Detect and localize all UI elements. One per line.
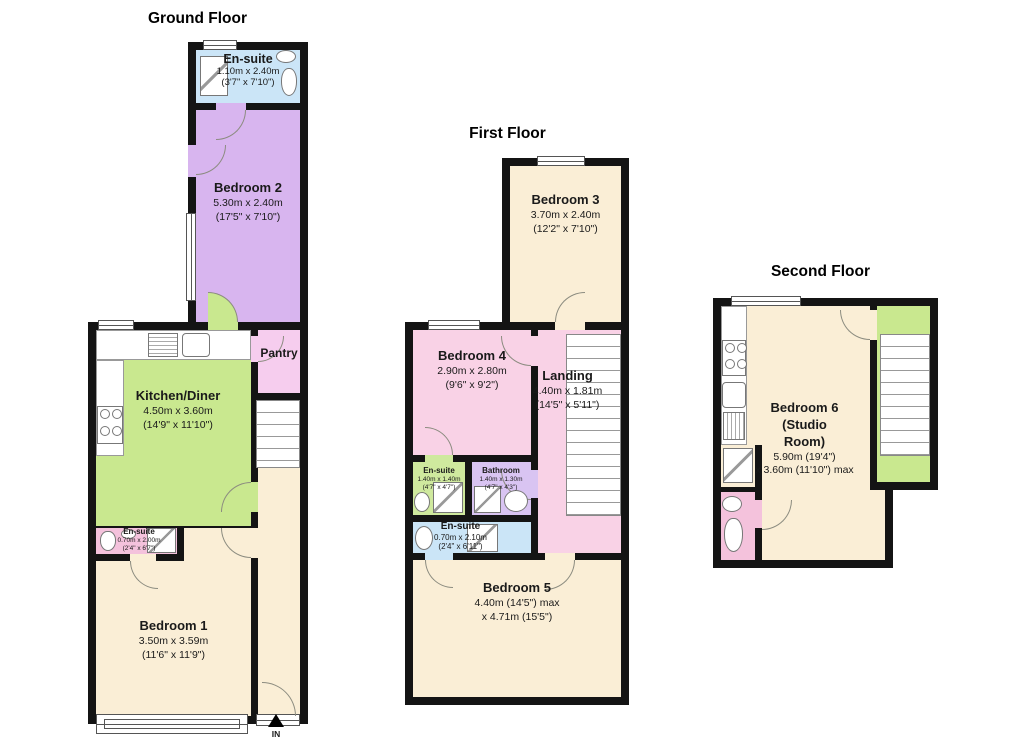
label-bedroom6: Bedroom 6 (Studio Room) 5.90m (19'4") x … bbox=[742, 400, 867, 478]
door-gap-bathroom bbox=[531, 470, 538, 498]
door-gap-ensuite-top bbox=[216, 103, 246, 110]
door-gap-bedroom5 bbox=[545, 553, 575, 560]
room-dim: 0.70m x 2.10m bbox=[413, 533, 508, 542]
room-name: Bedroom 1 bbox=[96, 618, 251, 635]
bay-window-inner bbox=[104, 719, 240, 729]
label-pantry: Pantry bbox=[256, 346, 302, 362]
label-landing: Landing 4.40m x 1.81m (14'5" x 5'11") bbox=[510, 368, 625, 412]
floorplan-canvas: Ground Floor En-suite 1.10 bbox=[0, 0, 1020, 742]
window-bedroom6 bbox=[731, 296, 801, 306]
room-name: (Studio bbox=[742, 417, 867, 434]
room-dim: 4.40m (14'5") max bbox=[413, 597, 621, 611]
door-gap-ensuite-a bbox=[425, 455, 453, 462]
window-bedroom4 bbox=[428, 320, 480, 330]
room-dim: (11'6" x 11'9") bbox=[96, 649, 251, 663]
label-bathroom: Bathroom 1.40m x 1.30m (4'7" x 4'3") bbox=[470, 466, 532, 491]
label-kitchen: Kitchen/Diner 4.50m x 3.60m (14'9" x 11'… bbox=[93, 388, 263, 432]
first-floor-title: First Floor bbox=[430, 125, 585, 143]
room-bedroom6-ext bbox=[870, 490, 885, 560]
label-bedroom1: Bedroom 1 3.50m x 3.59m (11'6" x 11'9") bbox=[96, 618, 251, 662]
room-name: Bathroom bbox=[470, 466, 532, 476]
sink-icon bbox=[722, 496, 742, 512]
room-name: Bedroom 5 bbox=[413, 580, 621, 597]
second-floor-title: Second Floor bbox=[743, 263, 898, 281]
room-dim: (4'7" x 4'7") bbox=[411, 484, 467, 491]
first-staircase bbox=[566, 334, 621, 516]
room-dim: (17'5" x 7'10") bbox=[196, 211, 300, 225]
label-bedroom5: Bedroom 5 4.40m (14'5") max x 4.71m (15'… bbox=[413, 580, 621, 624]
room-name: Bedroom 4 bbox=[413, 348, 531, 365]
room-dim: 5.30m x 2.40m bbox=[196, 197, 300, 211]
window-bedroom2 bbox=[186, 213, 196, 301]
door-gap-second-stairs bbox=[870, 310, 877, 340]
room-dim: 4.40m x 1.81m bbox=[510, 385, 625, 399]
room-name: Room) bbox=[742, 434, 867, 451]
door-gap-bedroom4 bbox=[531, 336, 538, 366]
label-bedroom2: Bedroom 2 5.30m x 2.40m (17'5" x 7'10") bbox=[196, 180, 300, 224]
door-gap-hall-bedroom1 bbox=[251, 528, 258, 558]
label-ensuite-a: En-suite 1.40m x 1.40m (4'7" x 4'7") bbox=[411, 466, 467, 491]
room-name: Bedroom 2 bbox=[196, 180, 300, 197]
window-kitchen bbox=[98, 320, 134, 330]
room-dim: (12'2" x 7'10") bbox=[510, 223, 621, 237]
door-gap-ensuite-mid bbox=[130, 554, 156, 561]
hob-icon bbox=[722, 340, 746, 376]
kitchen-drainer-icon bbox=[148, 333, 178, 357]
kitchen-sink-icon bbox=[182, 333, 210, 357]
room-dim: 5.90m (19'4") bbox=[742, 451, 867, 465]
label-ensuite-b: En-suite 0.70m x 2.10m (2'4" x 6'11") bbox=[413, 520, 508, 551]
label-ensuite-top: En-suite 1.10m x 2.40m (3'7" x 7'10") bbox=[196, 51, 300, 89]
door-gap-bedroom3 bbox=[555, 322, 585, 330]
room-name: Pantry bbox=[256, 346, 302, 362]
entrance-arrow-icon bbox=[268, 714, 284, 727]
label-ensuite-mid: En-suite 0.70m x 2.00m (2'4" x 6'7") bbox=[94, 527, 184, 552]
room-dim: (3'7" x 7'10") bbox=[196, 78, 300, 89]
room-name: Landing bbox=[510, 368, 625, 385]
room-name: En-suite bbox=[94, 527, 184, 537]
room-dim: (2'4" x 6'11") bbox=[413, 542, 508, 551]
label-bedroom3: Bedroom 3 3.70m x 2.40m (12'2" x 7'10") bbox=[510, 192, 621, 236]
room-dim: (2'4" x 6'7") bbox=[94, 545, 184, 552]
room-dim: 4.50m x 3.60m bbox=[93, 405, 263, 419]
room-name: Bedroom 6 bbox=[742, 400, 867, 417]
door-gap-kitchen-hall bbox=[251, 482, 258, 512]
sink-icon bbox=[414, 492, 430, 512]
door-gap-bedroom2-left bbox=[188, 145, 196, 177]
room-dim: 1.40m x 1.40m bbox=[411, 476, 467, 483]
room-name: En-suite bbox=[196, 51, 300, 67]
room-dim: 1.40m x 1.30m bbox=[470, 476, 532, 483]
entrance-label: IN bbox=[258, 729, 294, 739]
window-ensuite-top bbox=[203, 40, 237, 50]
room-dim: x 4.71m (15'5") bbox=[413, 611, 621, 625]
door-gap-ensuite-b bbox=[425, 553, 453, 560]
second-staircase bbox=[880, 334, 930, 456]
room-dim: 3.70m x 2.40m bbox=[510, 209, 621, 223]
room-name: En-suite bbox=[413, 520, 508, 533]
ground-floor-title: Ground Floor bbox=[120, 10, 275, 28]
room-dim: (14'5" x 5'11") bbox=[510, 399, 625, 413]
door-gap-bathroom2 bbox=[755, 500, 762, 528]
room-name: En-suite bbox=[411, 466, 467, 476]
window-bedroom3 bbox=[537, 156, 585, 166]
room-dim: (4'7" x 4'3") bbox=[470, 484, 532, 491]
room-name: Kitchen/Diner bbox=[93, 388, 263, 405]
room-dim: 3.50m x 3.59m bbox=[96, 635, 251, 649]
room-dim: 0.70m x 2.00m bbox=[94, 537, 184, 544]
sink-icon bbox=[504, 490, 528, 512]
door-gap-bedroom2-kitchen bbox=[208, 322, 238, 330]
room-dim: (14'9" x 11'10") bbox=[93, 419, 263, 433]
toilet-icon bbox=[724, 518, 743, 552]
room-name: Bedroom 3 bbox=[510, 192, 621, 209]
room-dim: x 3.60m (11'10") max bbox=[742, 464, 867, 478]
